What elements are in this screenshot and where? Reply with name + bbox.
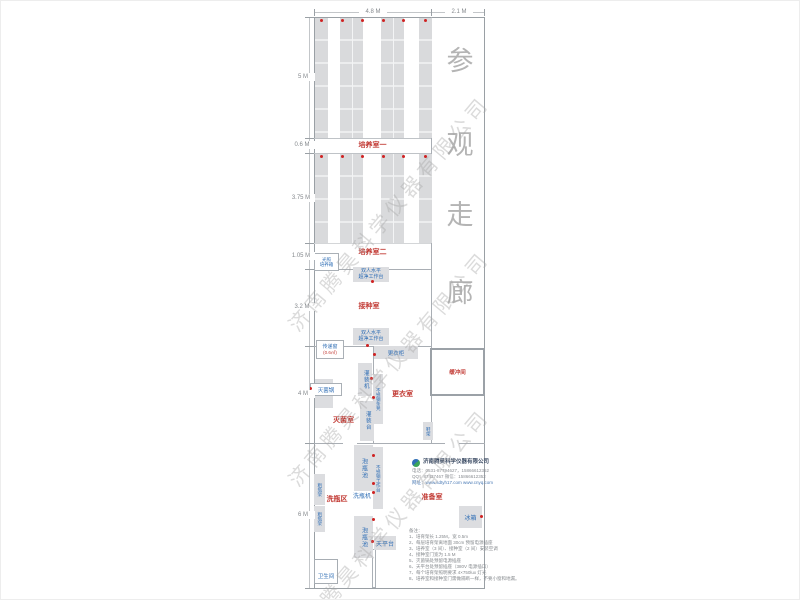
outlet-dot xyxy=(361,155,364,158)
note-line: 备注： xyxy=(409,528,423,534)
outlet-dot xyxy=(341,19,344,22)
outlet-dot xyxy=(361,19,364,22)
shelf-rack xyxy=(419,154,432,243)
company-name: 济南腾昊科学仪器有限公司 xyxy=(423,459,489,466)
note-line: 8、培养室和接种室门需做隔断一样，不要小窗和地漏。 xyxy=(409,576,520,582)
dimension-tick xyxy=(305,443,314,444)
outlet-dot xyxy=(424,155,427,158)
room-label-toilet: 卫生间 xyxy=(314,573,338,582)
clean-bench-2: 双人水平 超净工作台 xyxy=(353,328,389,345)
shoe-rack: 鞋架 xyxy=(423,422,433,440)
wall-bottom-section-c xyxy=(459,443,485,444)
dim-left-4m: 4 M xyxy=(291,390,315,398)
wall-bottom-section-a xyxy=(314,443,343,444)
floor-plan-canvas: 培养室一 培养室二 接种室 灭菌室 更衣室 洗瓶区 准备室 缓冲间 卫生间 光照… xyxy=(0,0,800,600)
corridor-char-4: 廊 xyxy=(445,279,475,309)
shelf-rack xyxy=(381,154,404,243)
note-line: 4、接种室门宽为 1.5 M xyxy=(409,552,456,558)
dim-left-5m: 5 M xyxy=(291,73,315,81)
outlet-dot xyxy=(402,19,405,22)
outlet-dot xyxy=(372,518,375,521)
stainless-bench: 不锈钢条凳 xyxy=(373,374,383,424)
shelf-rack xyxy=(419,18,432,138)
room-label-buffer: 缓冲间 xyxy=(449,368,466,376)
outlet-dot xyxy=(424,19,427,22)
dim-left-105m: 1.05 M xyxy=(287,252,315,260)
dim-left-06m: 0.6 M xyxy=(289,141,315,149)
wall-band1-top xyxy=(314,138,431,139)
wardrobe: 更衣柜 xyxy=(374,346,418,359)
note-line: 1、培育架长 1.25M，宽 0.5m xyxy=(409,534,468,540)
soak-pool-1: 泡瓶池 xyxy=(354,445,373,491)
dimension-tick xyxy=(305,269,314,270)
outlet-dot xyxy=(320,19,323,22)
dim-top-right: 2.1 M xyxy=(445,8,473,16)
buffer-room: 缓冲间 xyxy=(430,348,485,396)
dim-left-6m: 6 M xyxy=(291,511,315,519)
dimension-tick xyxy=(305,346,314,347)
room-label-preparation: 准备室 xyxy=(383,493,481,503)
outlet-dot xyxy=(372,491,375,494)
outlet-dot xyxy=(320,155,323,158)
outlet-dot xyxy=(372,482,375,485)
dimension-tick xyxy=(305,153,314,154)
dim-left-375m: 3.75 M xyxy=(287,194,315,202)
dimension-tick xyxy=(305,243,314,244)
outlet-dot xyxy=(372,454,375,457)
dimension-tick xyxy=(431,9,432,16)
room-label-cultivation1: 培养室一 xyxy=(314,141,431,151)
outlet-dot xyxy=(373,353,376,356)
balance-table: 天平台 xyxy=(374,536,396,550)
note-line: 3、培养室（3 间）、接种室（2 间）安装空调 xyxy=(409,546,498,552)
outlet-dot xyxy=(382,19,385,22)
soak-pool-2: 泡瓶池 xyxy=(354,516,373,558)
bottle-rack-2: 粗瓶架 xyxy=(314,506,325,532)
light-incubator: 光照 培养箱 xyxy=(314,253,339,271)
shelf-rack xyxy=(315,18,328,138)
outlet-dot xyxy=(371,540,374,543)
note-line: 7、每个培育架照明要求 4×750lux 灯光 xyxy=(409,570,486,576)
company-logo-icon xyxy=(412,459,420,467)
company-phone: 电话：0531-87794627，15866612352 xyxy=(412,468,489,474)
outlet-dot xyxy=(372,396,375,399)
dimension-tick xyxy=(305,17,314,18)
outlet-dot xyxy=(480,515,483,518)
dimension-tick xyxy=(305,138,314,139)
corridor-char-3: 走 xyxy=(445,201,475,231)
corridor-char-2: 观 xyxy=(445,131,475,161)
outlet-dot xyxy=(382,155,385,158)
bottle-washer-label: 洗瓶机 xyxy=(349,493,375,502)
dimension-tick xyxy=(484,9,485,16)
filling-table: 灌装台 xyxy=(360,401,374,441)
fridge: 冰箱 xyxy=(459,506,482,528)
note-line: 2、每层培育架离地面 30cm 预留电源插座 xyxy=(409,540,493,546)
wall-bottom-section-b xyxy=(357,443,445,444)
wall-shelf-bottom xyxy=(314,243,431,244)
room-label-inoculation: 接种室 xyxy=(314,302,424,312)
shelf-rack xyxy=(340,154,363,243)
dimension-tick xyxy=(305,588,314,589)
outlet-dot xyxy=(371,280,374,283)
corridor-char-1: 参 xyxy=(445,47,475,77)
shelf-rack xyxy=(315,154,328,243)
shelf-rack xyxy=(381,18,404,138)
company-qq: QQ：87437467 微信：15866612352 xyxy=(412,474,486,480)
company-web: 网址：www.sdtyh17.com www.cnyq.com xyxy=(412,480,493,486)
dim-top-left: 4.8 M xyxy=(359,8,387,16)
shelf-rack xyxy=(340,18,363,138)
bottle-rack-1: 粗瓶架 xyxy=(314,474,325,505)
note-line: 6、天平台处预留插座（380V 电源插口） xyxy=(409,564,491,570)
outlet-dot xyxy=(370,377,373,380)
outlet-dot xyxy=(366,344,369,347)
note-line: 5、灭菌锅处预留电源插座 xyxy=(409,558,461,564)
outlet-dot xyxy=(341,155,344,158)
dimension-tick xyxy=(314,9,315,16)
wall-band1-bottom xyxy=(314,153,431,154)
transfer-window: 传递窗 (0.6㎡) xyxy=(316,340,344,359)
dim-left-32m: 3.2 M xyxy=(289,303,315,311)
outlet-dot xyxy=(402,155,405,158)
